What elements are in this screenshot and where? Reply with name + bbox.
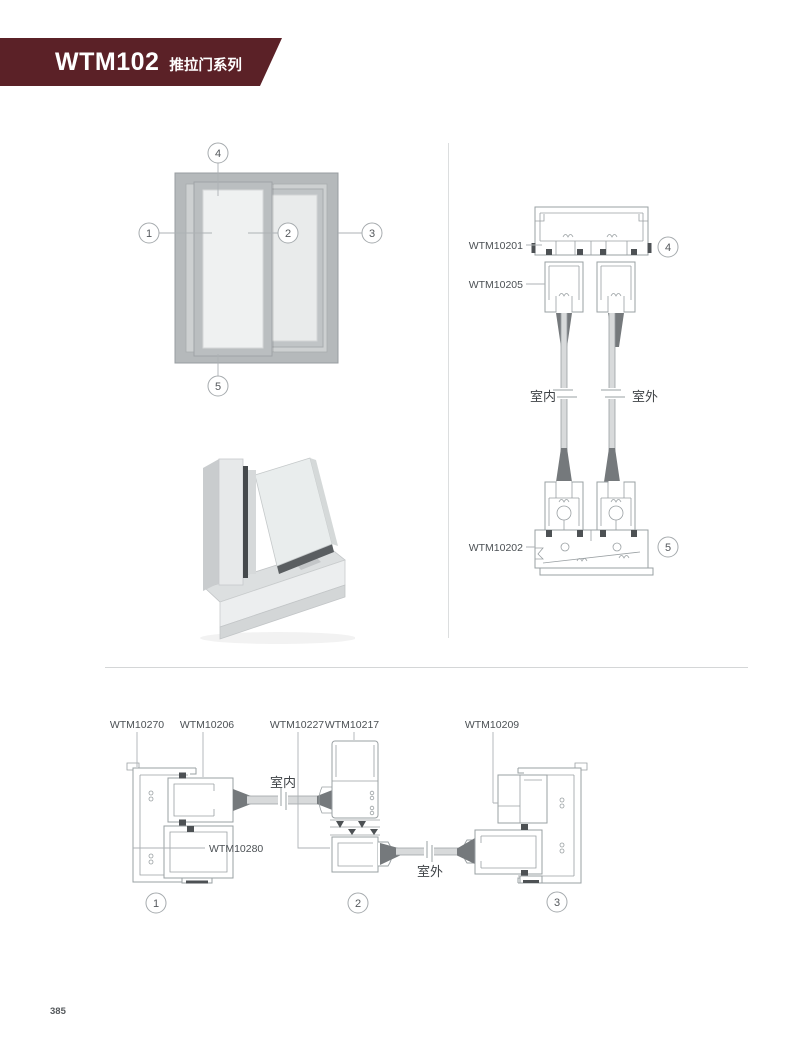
elevation-callout-4: 4 bbox=[208, 143, 228, 163]
label-jamb-right: WTM10209 bbox=[465, 719, 519, 731]
svg-text:5: 5 bbox=[215, 381, 221, 393]
horizontal-divider bbox=[105, 667, 748, 668]
vertical-cross-section: WTM10201 WTM10205 WTM10202 室内 室外 4 5 bbox=[450, 195, 695, 595]
meeting-stile-profile bbox=[332, 741, 378, 818]
sill-profile bbox=[535, 530, 653, 575]
head-profile bbox=[532, 207, 652, 255]
label-jamb-left: WTM10270 bbox=[110, 719, 164, 731]
outdoor-label: 室外 bbox=[632, 389, 658, 404]
sash-left-profile bbox=[168, 773, 251, 826]
profile-corner-photo bbox=[185, 445, 355, 650]
indoor-label: 室内 bbox=[530, 389, 556, 404]
elevation-left-sash bbox=[194, 182, 272, 356]
interlock-gaskets bbox=[330, 820, 380, 835]
svg-text:3: 3 bbox=[554, 897, 560, 909]
svg-text:1: 1 bbox=[153, 898, 159, 910]
svg-text:2: 2 bbox=[355, 898, 361, 910]
elevation-callout-3: 3 bbox=[362, 223, 382, 243]
label-head-profile: WTM10201 bbox=[469, 240, 523, 252]
elevation-callout-2: 2 bbox=[278, 223, 298, 243]
vsection-callout-5: 5 bbox=[658, 537, 678, 557]
hsection-callout-2: 2 bbox=[348, 893, 368, 913]
series-code: WTM102 bbox=[55, 38, 159, 86]
outdoor-sash-profile bbox=[332, 837, 400, 872]
svg-text:5: 5 bbox=[665, 542, 671, 554]
sash-bottom-left bbox=[545, 481, 583, 530]
svg-text:4: 4 bbox=[215, 148, 221, 160]
hsection-callout-1: 1 bbox=[146, 893, 166, 913]
indoor-glass bbox=[247, 788, 335, 811]
window-elevation-diagram: 4 1 2 3 5 bbox=[130, 135, 390, 405]
outdoor-glass bbox=[396, 841, 462, 862]
label-sash-top-profile: WTM10205 bbox=[469, 279, 523, 291]
catalog-page: WTM102 推拉门系列 4 1 2 3 bbox=[0, 0, 800, 1041]
svg-text:1: 1 bbox=[146, 228, 152, 240]
label-sash-left: WTM10206 bbox=[180, 719, 234, 731]
elevation-callout-5: 5 bbox=[208, 376, 228, 396]
sash-top-right bbox=[597, 262, 635, 347]
svg-text:4: 4 bbox=[665, 242, 671, 254]
label-meeting-stile: WTM10217 bbox=[325, 719, 379, 731]
label-sill-profile: WTM10202 bbox=[469, 542, 523, 554]
sash-right-profile bbox=[457, 824, 542, 876]
glass-pane-outdoor bbox=[601, 313, 625, 482]
outdoor-label: 室外 bbox=[417, 864, 443, 879]
hsection-callout-3: 3 bbox=[547, 892, 567, 912]
indoor-label: 室内 bbox=[270, 775, 296, 790]
photo-jamb bbox=[203, 459, 256, 591]
horizontal-cross-section: 室内 室外 WTM10270 WTM10206 WTM10227 WTM1021… bbox=[100, 700, 620, 930]
sash-bottom-right bbox=[597, 481, 635, 530]
label-interlock: WTM10227 bbox=[270, 719, 324, 731]
elevation-callout-1: 1 bbox=[139, 223, 159, 243]
series-banner: WTM102 推拉门系列 bbox=[0, 38, 282, 86]
vertical-divider bbox=[448, 143, 449, 638]
glass-pane-indoor bbox=[553, 313, 577, 482]
series-name: 推拉门系列 bbox=[169, 54, 242, 75]
svg-text:2: 2 bbox=[285, 228, 291, 240]
svg-text:3: 3 bbox=[369, 228, 375, 240]
label-cover: WTM10280 bbox=[209, 843, 263, 855]
vsection-callout-4: 4 bbox=[658, 237, 678, 257]
page-number: 385 bbox=[50, 1006, 66, 1017]
